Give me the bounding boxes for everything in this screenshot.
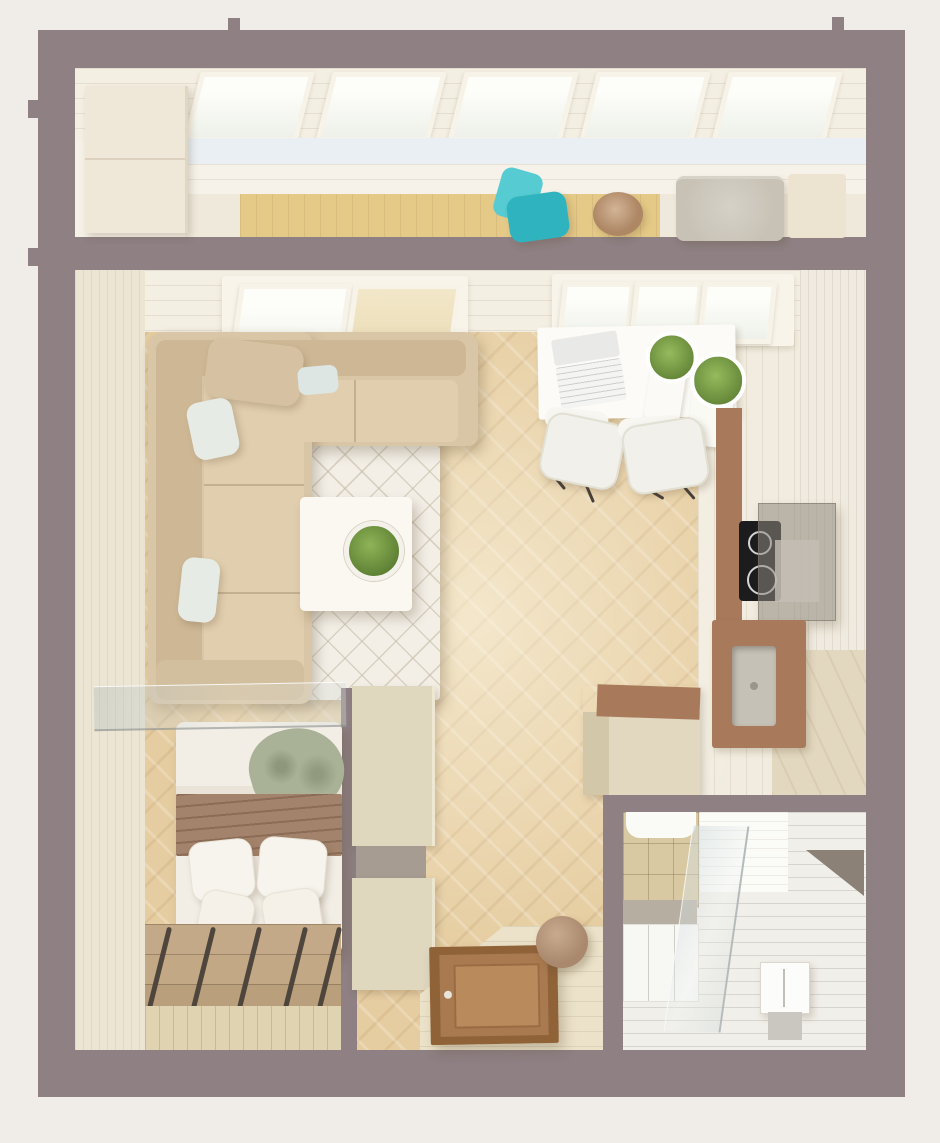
step-band — [145, 924, 341, 957]
cushion-seam — [354, 380, 356, 442]
entrance-door — [429, 945, 559, 1045]
wardrobe-shelf — [356, 846, 426, 878]
coffee-table — [300, 497, 412, 611]
cream-box — [788, 174, 846, 238]
round-stool — [536, 916, 588, 968]
peninsula-side-face — [583, 712, 609, 795]
bathroom-wall-top — [620, 795, 866, 812]
wall-notch — [28, 248, 38, 266]
door-inner-panel — [453, 963, 540, 1028]
wall-bottom — [38, 1050, 905, 1097]
laptop — [551, 330, 627, 409]
wall-top — [38, 30, 905, 68]
range-hood — [758, 503, 836, 621]
wall-notch — [832, 17, 844, 32]
balcony-storage-cabinet — [85, 86, 188, 233]
balcony-room — [75, 68, 866, 237]
cabinet-seam — [648, 925, 649, 1001]
balcony-glass-strip — [150, 138, 866, 164]
desk-chair — [620, 414, 723, 517]
laptop-keyboard — [555, 358, 627, 410]
shower-tray — [760, 962, 810, 1014]
balcony-skylight-pane — [315, 72, 446, 142]
cushion-seam — [204, 484, 304, 486]
desk — [537, 324, 737, 419]
sink-counter-wood — [712, 620, 806, 748]
wall-notch — [228, 18, 240, 32]
bathroom-wall-left — [603, 795, 623, 1050]
wall-right — [866, 30, 905, 1097]
bedroom-glass-partition — [94, 682, 347, 731]
wardrobe-upper — [352, 686, 435, 846]
kitchen-peninsula — [583, 686, 700, 795]
door-handle — [444, 991, 452, 999]
vanity-basin — [626, 812, 696, 838]
wall-left — [38, 30, 75, 1097]
sofa-back-pillow — [203, 336, 306, 407]
wardrobe-lower — [352, 878, 435, 990]
balcony-skylight-pane — [447, 72, 578, 142]
sofa-blue-pillow — [297, 364, 339, 395]
peninsula-wood-top — [596, 684, 700, 720]
bed-steps — [145, 924, 341, 1016]
balcony-skylight-pane — [579, 72, 710, 142]
inner-wall-left — [75, 270, 145, 1050]
storage-ottoman — [676, 176, 784, 241]
shower-mat-strip — [768, 1012, 802, 1040]
potted-plant — [344, 521, 404, 581]
shower-drain-line — [783, 969, 785, 1007]
chair-seat — [620, 415, 712, 497]
balcony-skylight-pane — [711, 72, 842, 142]
cabinet-seam — [85, 158, 185, 160]
sofa-white-pillow — [177, 556, 221, 624]
floor-plan-canvas — [0, 0, 940, 1143]
wall-balcony-divider — [38, 237, 905, 270]
round-side-table — [593, 192, 643, 236]
bathroom-room — [623, 812, 866, 1050]
sofa-back-left — [156, 342, 202, 692]
cushion-seam — [204, 592, 304, 594]
range-hood-inner — [775, 540, 819, 602]
balcony-skylight-pane — [183, 72, 314, 142]
wall-notch — [28, 100, 38, 118]
double-bed — [176, 722, 342, 954]
teal-lounge-chair — [505, 190, 571, 244]
sink-faucet — [750, 682, 758, 690]
bedroom-floor-planks — [145, 1006, 341, 1050]
